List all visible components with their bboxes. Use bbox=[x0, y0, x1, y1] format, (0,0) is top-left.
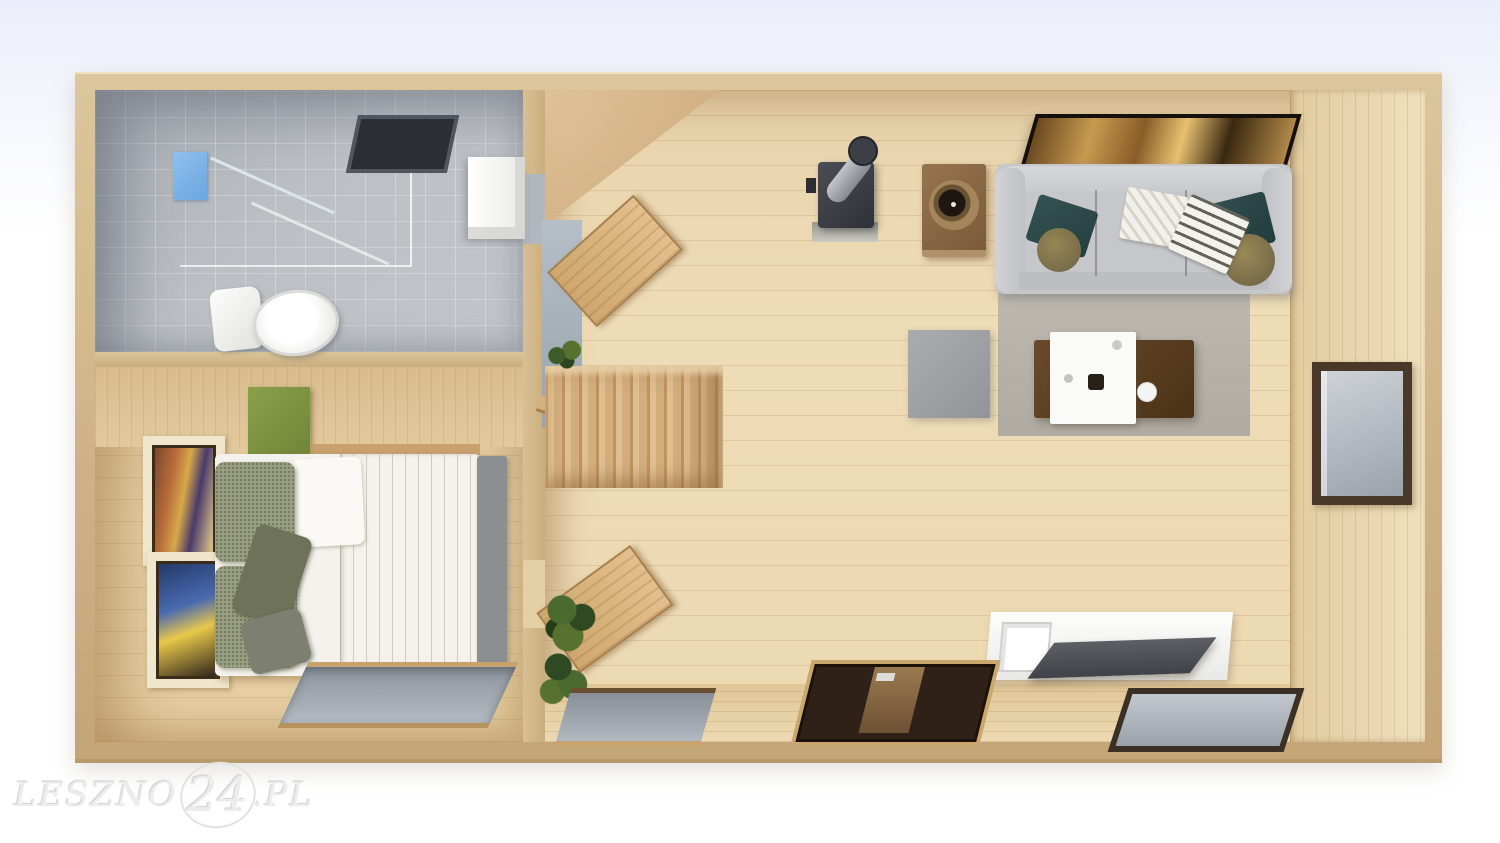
sofa-backrest bbox=[1001, 166, 1286, 192]
round-cushion-left bbox=[1037, 228, 1081, 272]
tray-dark-box bbox=[1088, 374, 1104, 390]
page-background: LESZNO 24 .PL bbox=[0, 0, 1500, 843]
stove-pipe-cap bbox=[848, 136, 878, 166]
sofa bbox=[995, 164, 1292, 294]
tv-screen bbox=[1020, 114, 1301, 168]
tray-item bbox=[1064, 374, 1073, 383]
stove-handle bbox=[806, 178, 816, 193]
ottoman bbox=[908, 330, 990, 418]
bowl-highlight bbox=[951, 202, 956, 207]
watermark-text-right: .PL bbox=[252, 775, 314, 815]
south-window-left bbox=[555, 688, 717, 746]
sink-cabinet bbox=[468, 157, 525, 239]
floor-plan bbox=[75, 72, 1442, 763]
wall-art-top-image bbox=[152, 445, 216, 557]
white-pillow bbox=[291, 456, 366, 548]
tv-image bbox=[1025, 118, 1296, 164]
cup bbox=[1137, 382, 1157, 402]
south-entry-door bbox=[795, 664, 995, 742]
watermark: LESZNO 24 .PL bbox=[14, 762, 314, 828]
watermark-circle: 24 bbox=[174, 755, 262, 835]
entry-door-handle bbox=[875, 673, 895, 681]
wall-art-bottom-image bbox=[156, 561, 220, 679]
desk-chair bbox=[1027, 637, 1216, 678]
bedroom-south-window bbox=[278, 662, 519, 728]
shower-panel bbox=[173, 152, 207, 200]
watermark-number: 24 bbox=[187, 767, 248, 823]
bedside-bench bbox=[477, 456, 507, 671]
east-window bbox=[1312, 362, 1412, 505]
double-bed bbox=[215, 454, 480, 676]
small-plant bbox=[543, 338, 589, 370]
south-window-right bbox=[1108, 688, 1305, 752]
watermark-text-left: LESZNO bbox=[14, 775, 178, 815]
sofa-cushion-divider bbox=[1095, 190, 1097, 276]
tray-item bbox=[1112, 340, 1122, 350]
wall-bathroom-bedroom bbox=[95, 352, 545, 367]
staircase bbox=[545, 366, 723, 488]
ceiling-vent bbox=[346, 115, 459, 173]
wall-art-top bbox=[143, 436, 225, 566]
